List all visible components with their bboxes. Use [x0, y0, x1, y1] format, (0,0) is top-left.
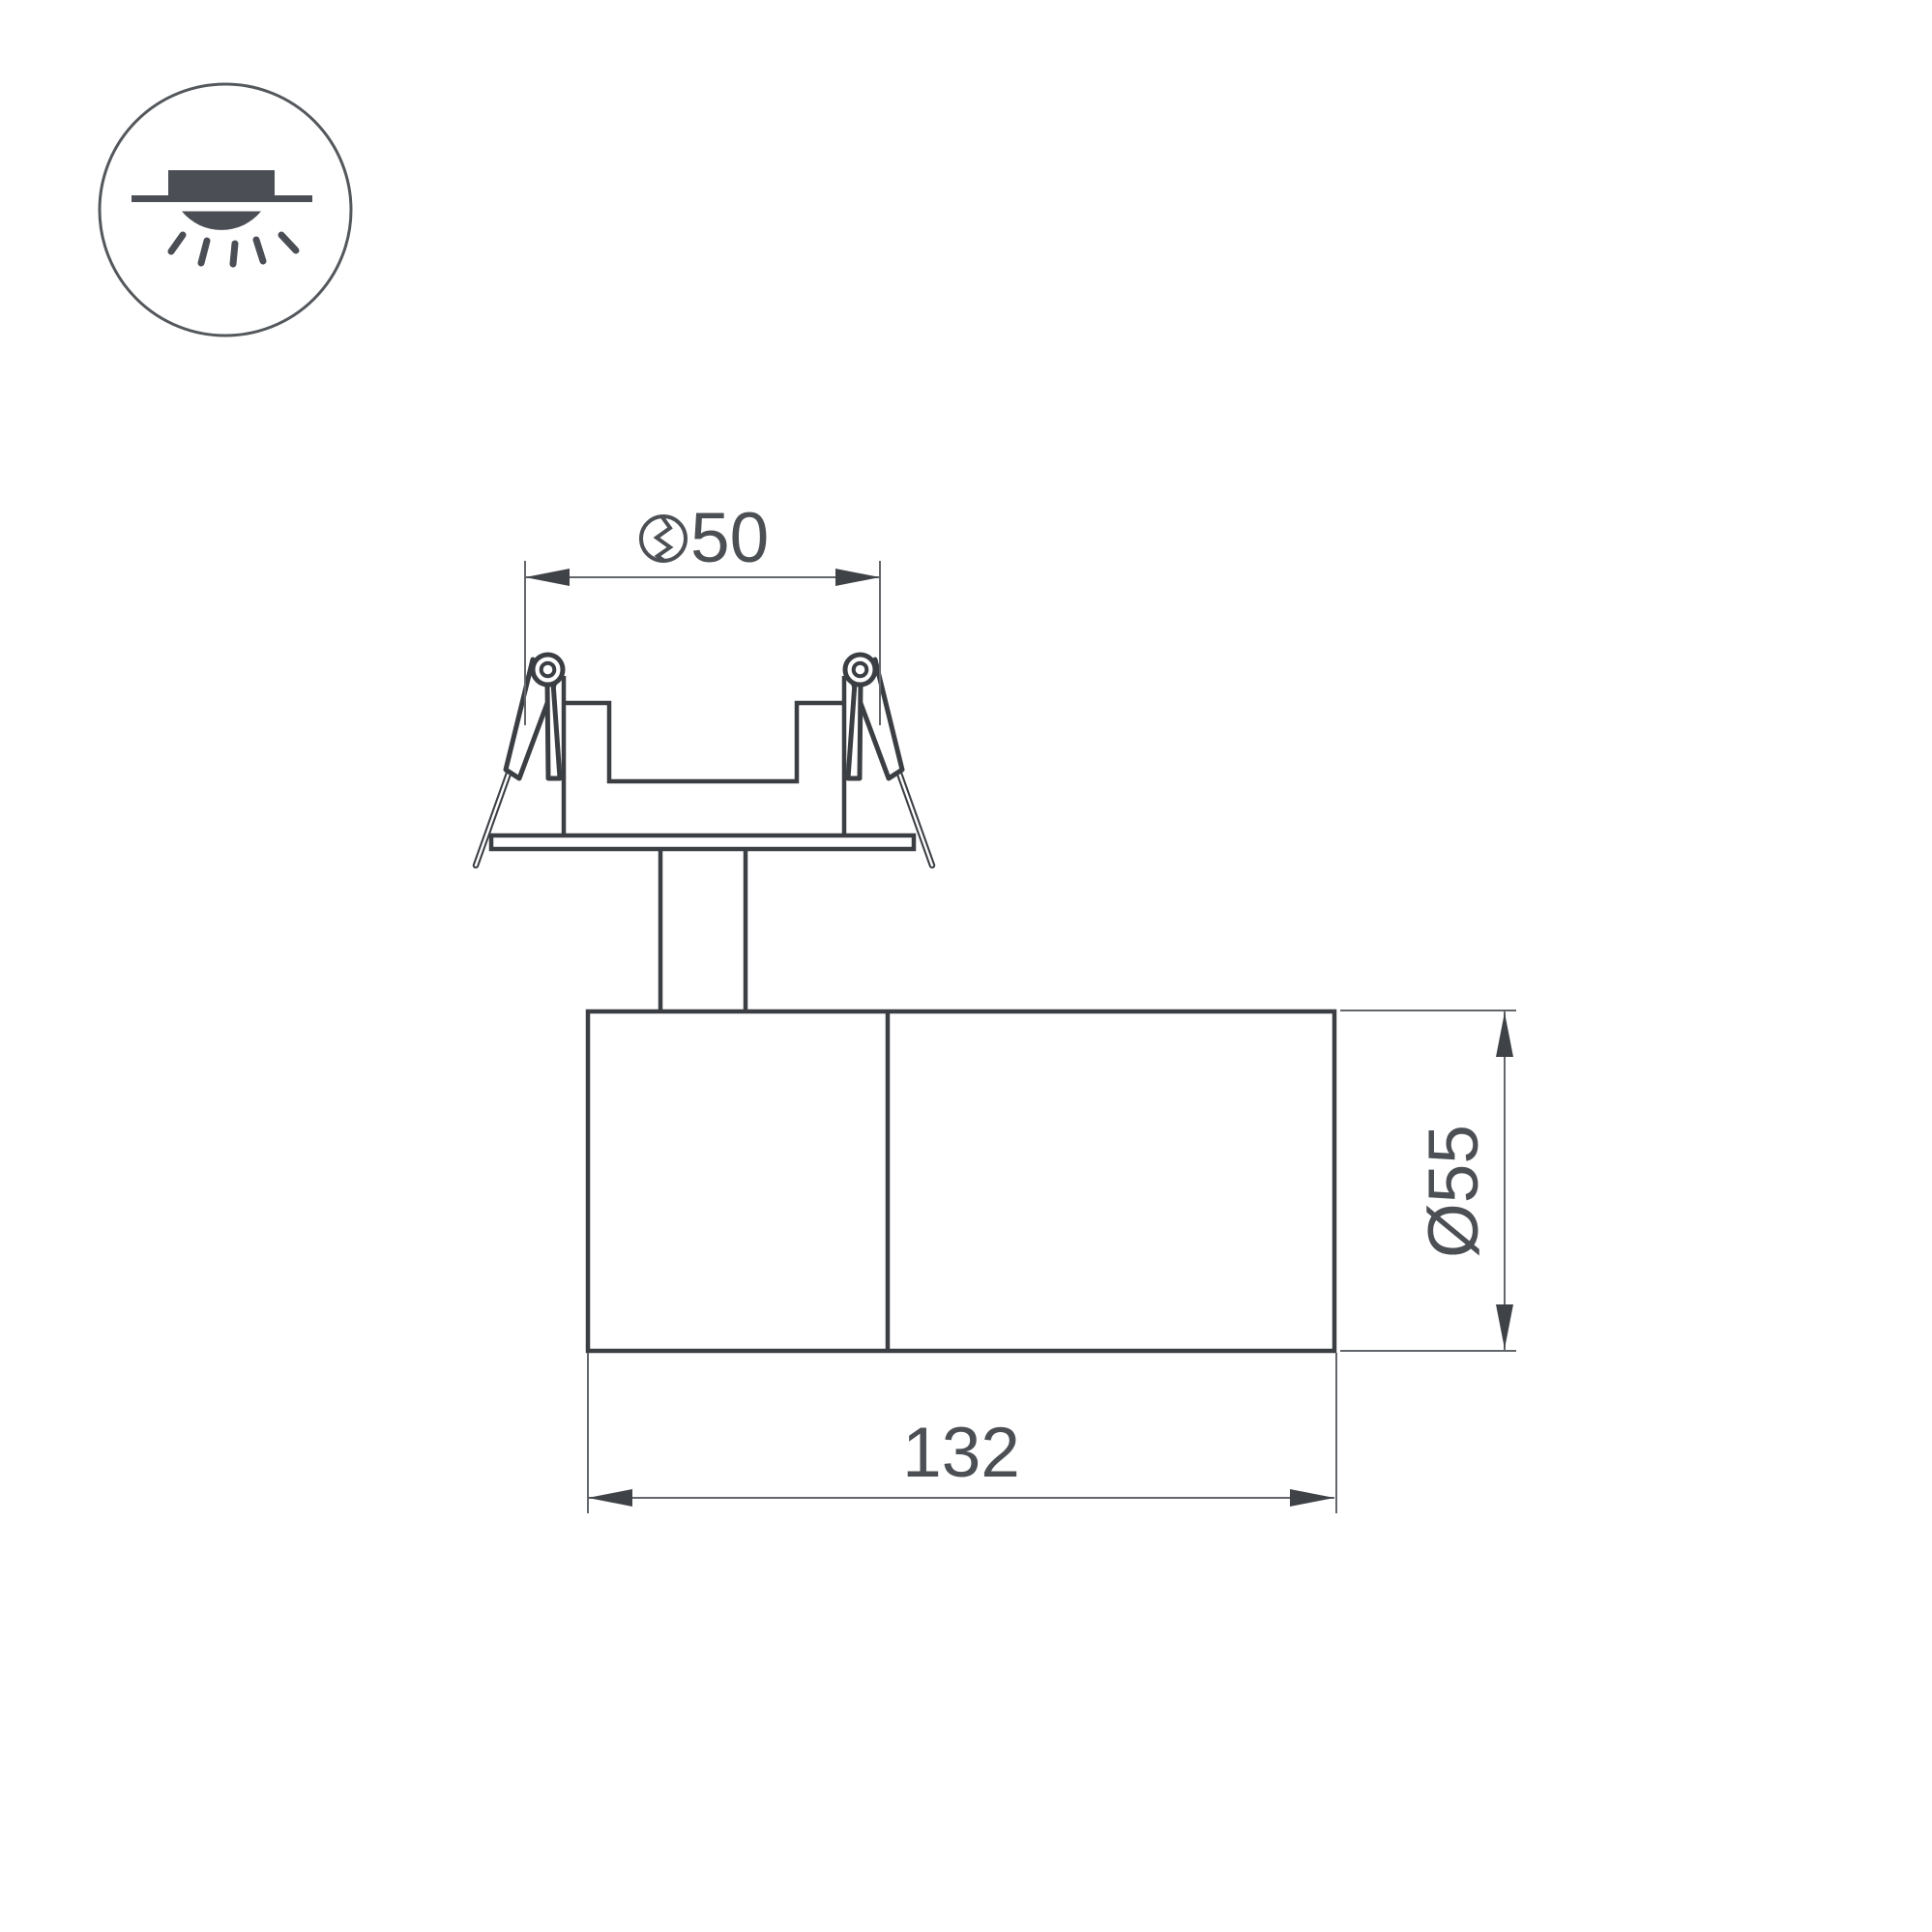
icon-light-rays — [171, 235, 296, 264]
hole-cut-symbol — [641, 516, 686, 561]
icon-ring — [100, 84, 351, 336]
cutout-dimension: 50 — [525, 499, 880, 725]
icon-ceiling-line — [132, 195, 312, 202]
arrowhead-left — [588, 1489, 632, 1507]
right-clip-blade — [848, 683, 861, 778]
spot-body — [588, 1011, 1334, 1351]
cutout-dimension-label: 50 — [690, 499, 769, 577]
length-dimension: 132 — [588, 1353, 1336, 1513]
arrowhead-top — [1496, 1012, 1513, 1057]
diameter-dimension: Ø55 — [1340, 1010, 1516, 1351]
recessed-downlight-icon — [100, 84, 351, 336]
drawing-sheet: 50 132 Ø55 — [0, 0, 1932, 1932]
right-clip-pivot-hole — [854, 663, 867, 677]
mounting-housing — [564, 676, 844, 835]
arrowhead-right — [1290, 1489, 1334, 1507]
left-clip-pivot-hole — [542, 663, 555, 677]
icon-housing — [168, 170, 275, 198]
trim-flange — [491, 835, 914, 849]
swivel-stem — [660, 849, 746, 1011]
diameter-dimension-label: Ø55 — [1415, 1125, 1493, 1258]
arrowhead-bottom — [1496, 1304, 1513, 1349]
length-dimension-label: 132 — [902, 1414, 1020, 1492]
left-clip-blade — [547, 683, 560, 778]
technical-drawing: 50 132 Ø55 — [0, 0, 1932, 1932]
arrowhead-left — [525, 569, 570, 586]
fixture-drawing — [476, 655, 1334, 1351]
icon-lamp-dome — [182, 212, 261, 230]
arrowhead-right — [835, 569, 880, 586]
